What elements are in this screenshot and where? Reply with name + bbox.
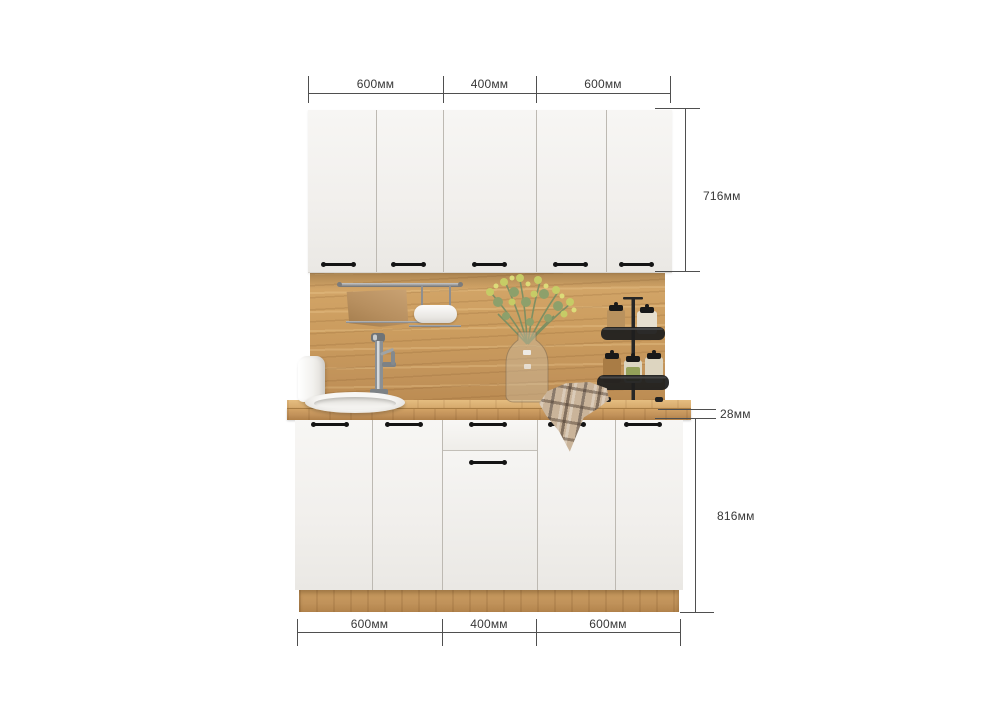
base-door-2-handle [386,423,422,426]
base-mid-door [443,451,537,590]
dimension-tick [680,612,714,613]
base-cabinets [295,420,683,590]
paper-towel-roll [414,305,457,323]
upper-door-4 [536,110,606,272]
paper-holder-frame [409,325,461,327]
upper-door-3-handle [473,263,506,266]
base-door-2 [372,420,442,590]
base-mid-door-handle [470,461,506,464]
upper-door-2 [376,110,443,272]
dimension-tick [655,418,716,419]
dimension-label-top-right: 600мм [536,77,670,91]
dimension-label-upper-height: 716мм [703,189,741,203]
dimension-tick [680,619,681,646]
dimension-tick [655,108,700,109]
kitchen-dimension-diagram: 600мм 400мм 600мм 716мм 28мм 816мм 600мм… [0,0,1000,708]
upper-door-5 [606,110,672,272]
upper-door-1 [308,110,376,272]
base-door-5 [615,420,683,590]
upper-door-2-handle [392,263,425,266]
dimension-label-top-middle: 400мм [443,77,536,91]
dimension-line-bottom [297,632,680,633]
base-mid-unit [442,420,537,590]
dimension-line-upper-height [685,108,686,271]
base-door-1-handle [312,423,348,426]
hanging-rail [339,283,461,287]
dimension-label-top-left: 600мм [308,77,443,91]
upper-door-5-handle [620,263,653,266]
base-door-4 [537,420,615,590]
base-drawer-handle [470,423,506,426]
dimension-label-bottom-left: 600мм [297,617,442,631]
dimension-label-bottom-middle: 400мм [442,617,536,631]
upper-cabinets [308,110,672,273]
dimension-label-countertop-thickness: 28мм [720,407,751,421]
spice-rack [597,297,669,409]
sink-basin [314,397,396,410]
dimension-tick [670,76,671,103]
dimension-tick [655,271,700,272]
base-door-5-handle [625,423,661,426]
upper-door-3 [443,110,536,272]
round-sink [305,392,405,413]
dimension-label-base-height: 816мм [717,509,755,523]
upper-door-1-handle [322,263,355,266]
dimension-line-base-height [695,418,696,612]
dimension-line-top [308,93,670,94]
upper-door-4-handle [554,263,587,266]
dimension-tick [658,409,716,410]
base-door-1 [295,420,372,590]
wood-plinth [299,590,679,612]
faucet [362,333,402,395]
dimension-label-bottom-right: 600мм [536,617,680,631]
